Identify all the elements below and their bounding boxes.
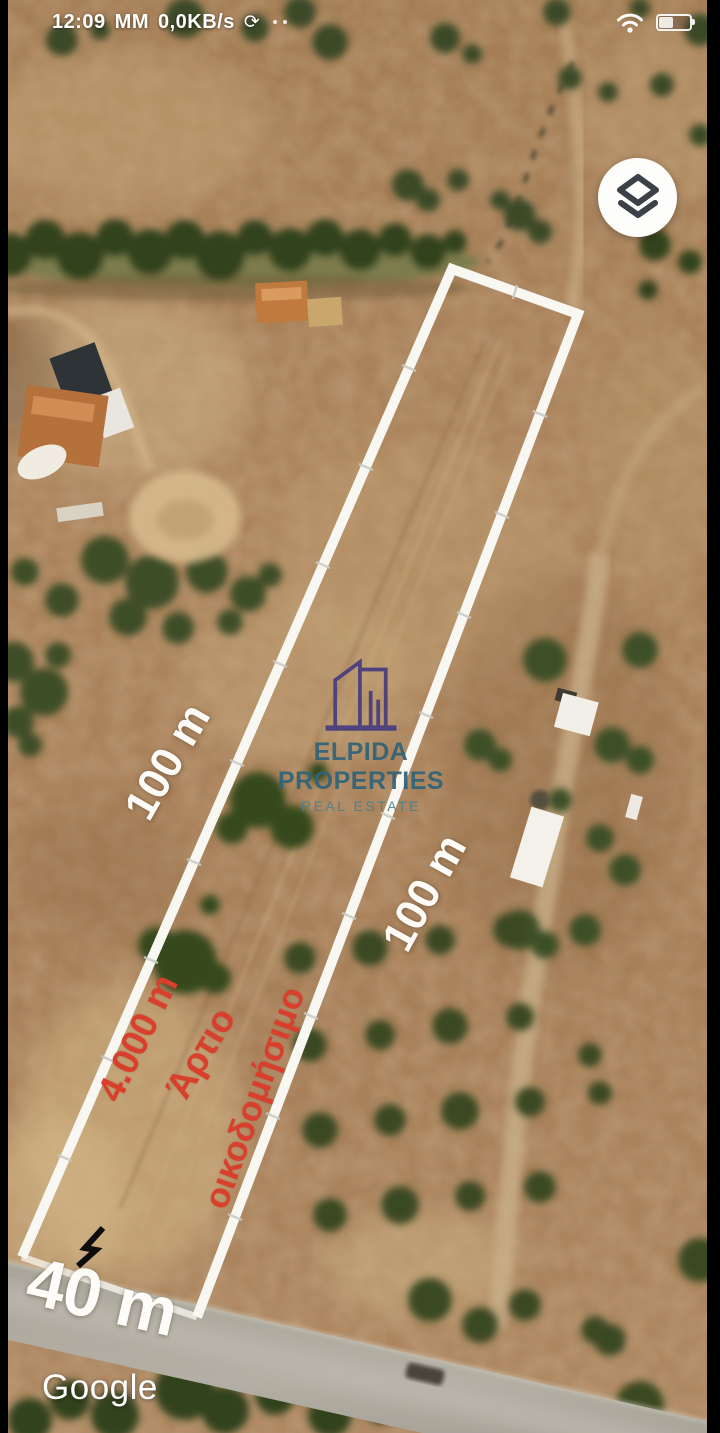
phone-screen: 12:09 MM 0,0KB/s ⟳ 100 m 100 m 40 m 4.00… — [0, 0, 720, 1433]
carrier-label: MM — [115, 11, 149, 34]
network-speed: 0,0KB/s — [158, 11, 235, 34]
google-logo: Google — [42, 1368, 158, 1408]
battery-icon — [656, 14, 692, 31]
wifi-icon — [616, 11, 644, 33]
clock: 12:09 — [52, 11, 106, 34]
status-bar: 12:09 MM 0,0KB/s ⟳ — [0, 0, 720, 44]
layers-icon — [615, 173, 661, 223]
agency-name: ELPIDA PROPERTIES — [230, 738, 492, 796]
right-black-border — [707, 0, 720, 1433]
sync-icon: ⟳ — [244, 11, 260, 34]
left-black-border — [0, 0, 8, 1433]
notification-dots — [273, 20, 287, 24]
agency-watermark: ELPIDA PROPERTIES REAL ESTATE — [230, 648, 492, 814]
agency-tagline: REAL ESTATE — [230, 798, 492, 814]
layers-button[interactable] — [598, 158, 677, 237]
building-logo-icon — [322, 648, 400, 734]
